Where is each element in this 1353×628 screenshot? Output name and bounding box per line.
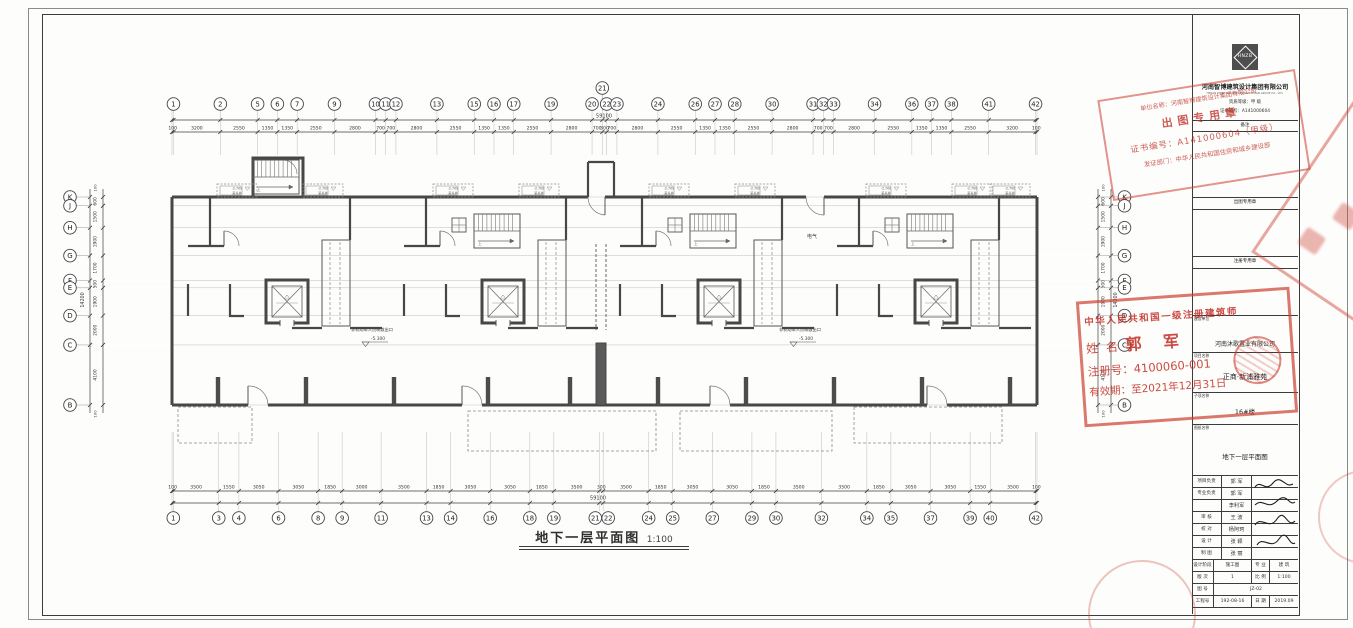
svg-text:1850: 1850 bbox=[873, 485, 885, 491]
title-underline-thin bbox=[519, 549, 689, 550]
svg-text:39: 39 bbox=[966, 514, 975, 522]
svg-text:38: 38 bbox=[947, 100, 956, 108]
svg-text:C: C bbox=[68, 341, 73, 349]
svg-text:600: 600 bbox=[93, 197, 99, 206]
plan-title: 地下一层平面图 1:100 bbox=[454, 527, 754, 546]
svg-text:24: 24 bbox=[644, 514, 653, 522]
svg-text:1350: 1350 bbox=[281, 126, 293, 132]
svg-text:500: 500 bbox=[93, 280, 99, 289]
svg-text:1500: 1500 bbox=[1101, 211, 1107, 222]
svg-text:H: H bbox=[67, 224, 72, 232]
svg-text:40: 40 bbox=[986, 514, 995, 522]
svg-text:1900: 1900 bbox=[1101, 236, 1107, 247]
svg-text:1850: 1850 bbox=[758, 485, 770, 491]
svg-text:100: 100 bbox=[93, 410, 98, 418]
svg-text:100: 100 bbox=[1032, 485, 1041, 491]
svg-text:59100: 59100 bbox=[590, 496, 606, 502]
svg-text:-2.700: -2.700 bbox=[318, 187, 328, 191]
svg-text:1700: 1700 bbox=[93, 262, 99, 273]
sheetname-value: 地下一层平面图 bbox=[1192, 451, 1298, 461]
svg-text:1550: 1550 bbox=[974, 485, 986, 491]
svg-text:3500: 3500 bbox=[1007, 485, 1019, 491]
svg-text:3500: 3500 bbox=[620, 485, 632, 491]
svg-text:36: 36 bbox=[908, 100, 917, 108]
svg-text:1350: 1350 bbox=[262, 126, 274, 132]
svg-text:3500: 3500 bbox=[793, 485, 805, 491]
svg-text:37: 37 bbox=[927, 100, 936, 108]
plan-walls bbox=[172, 158, 1037, 451]
svg-text:3500: 3500 bbox=[838, 485, 850, 491]
svg-text:-2.700: -2.700 bbox=[664, 187, 674, 191]
svg-text:电气: 电气 bbox=[807, 233, 817, 240]
svg-text:1850: 1850 bbox=[433, 485, 445, 491]
svg-text:100: 100 bbox=[93, 184, 98, 192]
svg-text:3050: 3050 bbox=[292, 485, 304, 491]
svg-text:1350: 1350 bbox=[478, 126, 490, 132]
svg-text:2800: 2800 bbox=[411, 126, 423, 132]
svg-text:2550: 2550 bbox=[887, 126, 899, 132]
svg-text:4: 4 bbox=[237, 514, 241, 522]
svg-text:9: 9 bbox=[340, 514, 344, 522]
svg-text:100: 100 bbox=[1032, 126, 1041, 132]
svg-text:2550: 2550 bbox=[233, 126, 245, 132]
svg-text:采光井: 采光井 bbox=[967, 191, 977, 196]
svg-text:采光井: 采光井 bbox=[232, 191, 242, 196]
svg-text:-2.700: -2.700 bbox=[881, 187, 891, 191]
svg-text:15: 15 bbox=[470, 100, 479, 108]
svg-text:28: 28 bbox=[730, 100, 739, 108]
svg-text:1: 1 bbox=[171, 100, 175, 108]
svg-text:13: 13 bbox=[433, 100, 442, 108]
svg-text:41: 41 bbox=[984, 100, 993, 108]
svg-text:22: 22 bbox=[604, 514, 613, 522]
svg-text:3050: 3050 bbox=[504, 485, 516, 491]
svg-text:1350: 1350 bbox=[936, 126, 948, 132]
svg-text:上: 上 bbox=[694, 241, 698, 246]
svg-text:2000: 2000 bbox=[93, 325, 99, 336]
table-row-fig: 图 号JZ-02 bbox=[1192, 584, 1298, 596]
svg-text:采光井: 采光井 bbox=[448, 191, 458, 196]
svg-text:3050: 3050 bbox=[726, 485, 738, 491]
svg-text:1350: 1350 bbox=[719, 126, 731, 132]
svg-text:-5.300: -5.300 bbox=[799, 336, 813, 342]
svg-text:26: 26 bbox=[691, 100, 700, 108]
svg-text:27: 27 bbox=[708, 514, 717, 522]
svg-text:16: 16 bbox=[490, 100, 499, 108]
svg-text:采光井: 采光井 bbox=[664, 191, 674, 196]
svg-text:-2.700: -2.700 bbox=[750, 187, 760, 191]
svg-text:3050: 3050 bbox=[253, 485, 265, 491]
svg-text:-2.700: -2.700 bbox=[967, 187, 977, 191]
svg-text:-2.700: -2.700 bbox=[534, 187, 544, 191]
svg-text:17: 17 bbox=[509, 100, 518, 108]
svg-text:1350: 1350 bbox=[916, 126, 928, 132]
svg-text:3050: 3050 bbox=[944, 485, 956, 491]
svg-text:1550: 1550 bbox=[223, 485, 235, 491]
svg-text:34: 34 bbox=[863, 514, 872, 522]
svg-text:2800: 2800 bbox=[349, 126, 361, 132]
svg-text:2550: 2550 bbox=[527, 126, 539, 132]
svg-text:700: 700 bbox=[824, 126, 833, 132]
svg-text:1900: 1900 bbox=[93, 296, 99, 307]
svg-text:采光井: 采光井 bbox=[881, 191, 891, 196]
svg-text:29: 29 bbox=[748, 514, 757, 522]
svg-text:2800: 2800 bbox=[787, 126, 799, 132]
table-row-job: 工程号192-08-16日 期2019.09 bbox=[1192, 596, 1298, 608]
svg-text:34: 34 bbox=[870, 100, 879, 108]
svg-text:2550: 2550 bbox=[310, 126, 322, 132]
svg-text:上: 上 bbox=[911, 241, 915, 246]
svg-text:20: 20 bbox=[588, 100, 597, 108]
svg-text:E: E bbox=[1122, 284, 1126, 292]
svg-text:采光井: 采光井 bbox=[318, 191, 328, 196]
svg-text:1500: 1500 bbox=[93, 211, 99, 222]
svg-text:1900: 1900 bbox=[93, 236, 99, 247]
svg-text:3050: 3050 bbox=[465, 485, 477, 491]
svg-text:700: 700 bbox=[376, 126, 385, 132]
svg-text:2800: 2800 bbox=[848, 126, 860, 132]
table-row-version: 版 次1比 例1:100 bbox=[1192, 572, 1298, 584]
svg-text:22: 22 bbox=[602, 100, 611, 108]
svg-text:6: 6 bbox=[275, 100, 279, 108]
svg-text:35: 35 bbox=[887, 514, 896, 522]
svg-text:采光井: 采光井 bbox=[750, 191, 760, 196]
svg-text:3000: 3000 bbox=[356, 485, 368, 491]
svg-text:1350: 1350 bbox=[498, 126, 510, 132]
svg-text:14200: 14200 bbox=[80, 292, 86, 307]
svg-text:18: 18 bbox=[525, 514, 534, 522]
svg-text:21: 21 bbox=[598, 84, 607, 92]
svg-text:27: 27 bbox=[711, 100, 720, 108]
svg-text:D: D bbox=[67, 312, 72, 320]
svg-text:500: 500 bbox=[1101, 280, 1107, 289]
sheetname-label: 图纸名称 bbox=[1194, 425, 1209, 431]
svg-text:37: 37 bbox=[926, 514, 935, 522]
svg-text:300: 300 bbox=[597, 485, 606, 491]
svg-text:3500: 3500 bbox=[398, 485, 410, 491]
svg-text:11: 11 bbox=[381, 100, 390, 108]
svg-text:30: 30 bbox=[768, 100, 777, 108]
svg-text:-2.700: -2.700 bbox=[232, 187, 242, 191]
svg-text:100: 100 bbox=[1101, 184, 1106, 192]
svg-text:21: 21 bbox=[591, 514, 600, 522]
svg-text:2550: 2550 bbox=[964, 126, 976, 132]
svg-text:2800: 2800 bbox=[566, 126, 578, 132]
logo-text: HNZB bbox=[1232, 54, 1258, 59]
svg-text:600: 600 bbox=[1101, 197, 1107, 206]
svg-text:非机动车人员疏散出口: 非机动车人员疏散出口 bbox=[351, 326, 393, 333]
svg-text:4100: 4100 bbox=[93, 369, 99, 380]
svg-text:G: G bbox=[1122, 252, 1127, 260]
svg-text:B: B bbox=[68, 401, 73, 409]
svg-text:1: 1 bbox=[171, 514, 175, 522]
svg-text:700: 700 bbox=[386, 126, 395, 132]
svg-text:12: 12 bbox=[392, 100, 401, 108]
sheetname-band: 图纸名称 地下一层平面图 bbox=[1192, 424, 1298, 476]
svg-text:11: 11 bbox=[377, 514, 386, 522]
svg-text:16: 16 bbox=[486, 514, 495, 522]
svg-text:2550: 2550 bbox=[671, 126, 683, 132]
svg-text:上: 上 bbox=[257, 187, 261, 192]
svg-text:3200: 3200 bbox=[191, 126, 203, 132]
svg-text:42: 42 bbox=[1031, 100, 1040, 108]
svg-text:100: 100 bbox=[168, 126, 177, 132]
svg-text:700: 700 bbox=[607, 126, 616, 132]
svg-text:6: 6 bbox=[276, 514, 280, 522]
svg-text:13: 13 bbox=[422, 514, 431, 522]
svg-text:10: 10 bbox=[371, 100, 380, 108]
svg-text:14: 14 bbox=[446, 514, 455, 522]
svg-text:G: G bbox=[67, 252, 72, 260]
svg-text:25: 25 bbox=[668, 514, 677, 522]
svg-text:23: 23 bbox=[613, 100, 622, 108]
svg-text:2550: 2550 bbox=[450, 126, 462, 132]
svg-text:上: 上 bbox=[478, 241, 482, 246]
title-underline bbox=[519, 546, 689, 547]
svg-text:2550: 2550 bbox=[748, 126, 760, 132]
architect-seal-stamp: 中华人民共和国一级注册建筑师 姓 名 郭 军 注册号：4100060-001 有… bbox=[1076, 287, 1298, 428]
svg-text:J: J bbox=[1122, 202, 1125, 210]
svg-text:30: 30 bbox=[772, 514, 781, 522]
svg-text:31: 31 bbox=[809, 100, 818, 108]
company-logo: HNZB bbox=[1232, 44, 1258, 70]
svg-text:32: 32 bbox=[819, 100, 828, 108]
svg-text:2800: 2800 bbox=[632, 126, 644, 132]
plan-title-text: 地下一层平面图 bbox=[535, 531, 640, 546]
svg-text:-2.700: -2.700 bbox=[1005, 187, 1015, 191]
svg-text:3050: 3050 bbox=[905, 485, 917, 491]
svg-text:19: 19 bbox=[547, 100, 556, 108]
svg-text:采光井: 采光井 bbox=[534, 191, 544, 196]
svg-text:2: 2 bbox=[218, 100, 222, 108]
svg-text:1850: 1850 bbox=[324, 485, 336, 491]
svg-text:E: E bbox=[68, 284, 72, 292]
svg-text:H: H bbox=[1122, 224, 1127, 232]
svg-text:42: 42 bbox=[1031, 514, 1040, 522]
svg-text:32: 32 bbox=[817, 514, 826, 522]
svg-text:采光井: 采光井 bbox=[1005, 191, 1015, 196]
svg-text:3500: 3500 bbox=[571, 485, 583, 491]
svg-text:1700: 1700 bbox=[1101, 262, 1107, 273]
svg-text:1350: 1350 bbox=[699, 126, 711, 132]
svg-text:19: 19 bbox=[550, 514, 559, 522]
svg-text:3: 3 bbox=[217, 514, 221, 522]
svg-text:700: 700 bbox=[814, 126, 823, 132]
svg-text:3500: 3500 bbox=[190, 485, 202, 491]
signatures bbox=[1251, 477, 1297, 563]
svg-text:-2.700: -2.700 bbox=[448, 187, 458, 191]
drawing-sheet: 1003200255013501350255028007007002800255… bbox=[0, 0, 1353, 628]
svg-text:J: J bbox=[68, 202, 71, 210]
svg-text:33: 33 bbox=[829, 100, 838, 108]
plan-title-scale: 1:100 bbox=[647, 535, 673, 545]
svg-text:非机动车人员疏散出口: 非机动车人员疏散出口 bbox=[779, 326, 821, 333]
svg-text:100: 100 bbox=[168, 485, 177, 491]
svg-text:-5.300: -5.300 bbox=[371, 336, 385, 342]
svg-text:3200: 3200 bbox=[1006, 126, 1018, 132]
svg-text:24: 24 bbox=[654, 100, 663, 108]
svg-text:7: 7 bbox=[295, 100, 299, 108]
svg-text:8: 8 bbox=[316, 514, 320, 522]
svg-text:3050: 3050 bbox=[687, 485, 699, 491]
svg-text:5: 5 bbox=[255, 100, 259, 108]
svg-text:1850: 1850 bbox=[655, 485, 667, 491]
svg-text:9: 9 bbox=[332, 100, 336, 108]
svg-text:1850: 1850 bbox=[536, 485, 548, 491]
svg-text:59100: 59100 bbox=[596, 114, 612, 120]
